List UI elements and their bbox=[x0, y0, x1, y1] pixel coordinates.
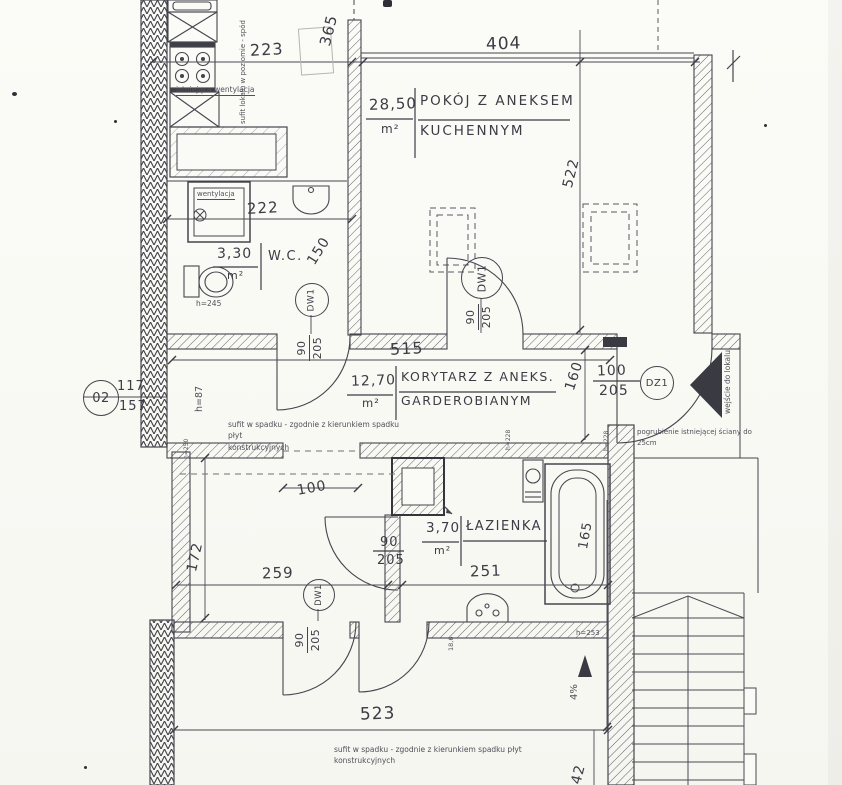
note-ceiling-level: sufit lokalu w poziomie - spód bbox=[240, 20, 247, 124]
dim-259: 259 bbox=[262, 565, 294, 581]
room-wc-area: 3,30 bbox=[217, 247, 252, 261]
note-sloped-ceiling-bottom: sufit w spadku - zgodnie z kierunkiem sp… bbox=[334, 744, 594, 767]
fraction-bar bbox=[309, 335, 310, 361]
room-main-unit: m² bbox=[381, 123, 400, 135]
height-228-a: h=228 bbox=[604, 431, 610, 451]
corridor-wall-top bbox=[167, 334, 740, 349]
note-line: 25cm bbox=[637, 439, 657, 447]
door-height: 205 bbox=[311, 337, 324, 360]
room-corridor-name-1: KORYTARZ Z ANEKS. bbox=[401, 371, 554, 384]
note-line: sufit w spadku - zgodnie z kierunkiem sp… bbox=[228, 420, 399, 440]
door-size-main: 90205 bbox=[464, 304, 493, 330]
bath-door-height: 205 bbox=[377, 554, 405, 567]
paper-speck bbox=[84, 766, 87, 769]
door-arc-room2 bbox=[359, 622, 429, 692]
kitchen-counter bbox=[170, 127, 287, 177]
door-tag-dw1-wc: DW1 bbox=[295, 283, 329, 317]
dim-251: 251 bbox=[470, 563, 502, 579]
room-corridor-unit: m² bbox=[362, 398, 380, 410]
height-245: h=245 bbox=[196, 300, 221, 308]
level-marker-bottom: 157 bbox=[119, 400, 147, 413]
level-marker-circle: 02 bbox=[83, 380, 119, 416]
room-wc-unit: m² bbox=[227, 270, 244, 281]
dim-223: 223 bbox=[250, 41, 284, 59]
room-wc-name: W.C. bbox=[268, 250, 303, 263]
dim-515: 515 bbox=[390, 340, 424, 358]
door-tag-text: DW1 bbox=[314, 584, 324, 606]
entry-door-height: 205 bbox=[599, 384, 629, 398]
wall-left-lower bbox=[150, 620, 174, 785]
door-tag-text: DW1 bbox=[307, 288, 317, 311]
floor-plan: 223 404 365 sufit lokalu w poziomie - sp… bbox=[0, 0, 842, 785]
level-marker-text: 02 bbox=[92, 391, 110, 406]
door-tag-dw1-room: DW1 bbox=[303, 579, 335, 611]
room-corridor-name-2: GARDEROBIANYM bbox=[401, 395, 532, 408]
toilet-icon bbox=[184, 266, 233, 297]
bottom-room-walls bbox=[174, 622, 608, 638]
door-size-wc: 90205 bbox=[295, 335, 324, 361]
kitchen-cabinets bbox=[168, 0, 219, 127]
paper-speck bbox=[12, 92, 17, 96]
room-bath-unit: m² bbox=[434, 545, 451, 556]
water-heater-icon bbox=[523, 460, 543, 502]
note-line: konstrukcyjnych bbox=[334, 756, 395, 765]
level-marker-top: 117 bbox=[117, 380, 145, 393]
door-width: 90 bbox=[464, 310, 477, 325]
height-228-b: h=228 bbox=[506, 430, 512, 450]
height-253: h=253 bbox=[576, 630, 600, 637]
paper-speck bbox=[114, 120, 117, 123]
door-tag-text: DW1 bbox=[475, 264, 488, 292]
fraction-bar bbox=[307, 627, 308, 653]
corner-mark bbox=[727, 50, 740, 82]
door-tag-text: DZ1 bbox=[646, 378, 668, 389]
paper-speck bbox=[764, 124, 767, 127]
note-line: konstrukcyjnych bbox=[228, 443, 289, 452]
label-entrance: wejście do lokalu bbox=[724, 350, 732, 414]
wall-left-mid bbox=[172, 452, 190, 632]
dim-404: 404 bbox=[486, 35, 522, 53]
entry-arrow-icon bbox=[690, 352, 722, 418]
slope-percent: 4% bbox=[570, 684, 580, 700]
door-width: 90 bbox=[295, 341, 308, 356]
room-bath-area: 3,70 bbox=[426, 522, 460, 536]
door-tag-dw1-main: DW1 bbox=[461, 257, 503, 299]
stove-icon bbox=[170, 47, 215, 88]
wall-bathroom-left bbox=[385, 515, 400, 622]
scan-edge-shade bbox=[828, 0, 842, 785]
note-line: sufit w spadku - zgodnie z kierunkiem sp… bbox=[334, 745, 522, 754]
paper-speck bbox=[383, 0, 392, 7]
door-width: 90 bbox=[293, 633, 306, 648]
height-87: h=87 bbox=[195, 386, 205, 412]
stairs bbox=[632, 593, 756, 785]
note-sloped-ceiling-corridor: sufit w spadku - zgodnie z kierunkiem sp… bbox=[228, 419, 413, 453]
dim-222: 222 bbox=[247, 200, 279, 217]
wc-sink-icon bbox=[293, 186, 329, 214]
note-existing-ventilation: istniejąca wentylacja bbox=[176, 86, 255, 96]
bath-door-width: 90 bbox=[380, 536, 399, 549]
wall-right-strip bbox=[608, 425, 634, 785]
height-250: h=250 bbox=[184, 439, 190, 459]
room-main-area: 28,50 bbox=[369, 96, 417, 113]
dim-523: 523 bbox=[360, 705, 396, 723]
slope-arrow-icon bbox=[578, 655, 592, 677]
door-height: 205 bbox=[480, 306, 493, 329]
entry-door-width: 100 bbox=[597, 363, 627, 378]
note-wall-thickening: pogrubienie istniejącej ściany do25cm bbox=[637, 427, 762, 448]
bath-sink-icon bbox=[467, 594, 508, 622]
wall-left-upper bbox=[141, 0, 167, 447]
fraction-bar bbox=[478, 304, 479, 330]
door-tag-dz1: DZ1 bbox=[640, 366, 674, 400]
room-main-name-1: POKÓJ Z ANEKSEM bbox=[420, 95, 575, 109]
door-height: 205 bbox=[309, 629, 322, 652]
dim-18-6: 18,6 bbox=[448, 637, 455, 651]
room-main-name-2: KUCHENNYM bbox=[420, 125, 525, 139]
roof-window-2 bbox=[583, 204, 637, 272]
label-ventilation: wentylacja bbox=[197, 191, 235, 200]
note-line: pogrubienie istniejącej ściany do bbox=[637, 428, 752, 436]
room-corridor-area: 12,70 bbox=[351, 373, 397, 389]
door-size-room1: 90205 bbox=[293, 627, 322, 653]
door-arc-wc bbox=[277, 315, 350, 410]
wall-kitchen-divider bbox=[348, 0, 361, 335]
shaft bbox=[392, 458, 452, 515]
room-bath-name: ŁAZIENKA bbox=[466, 520, 542, 533]
